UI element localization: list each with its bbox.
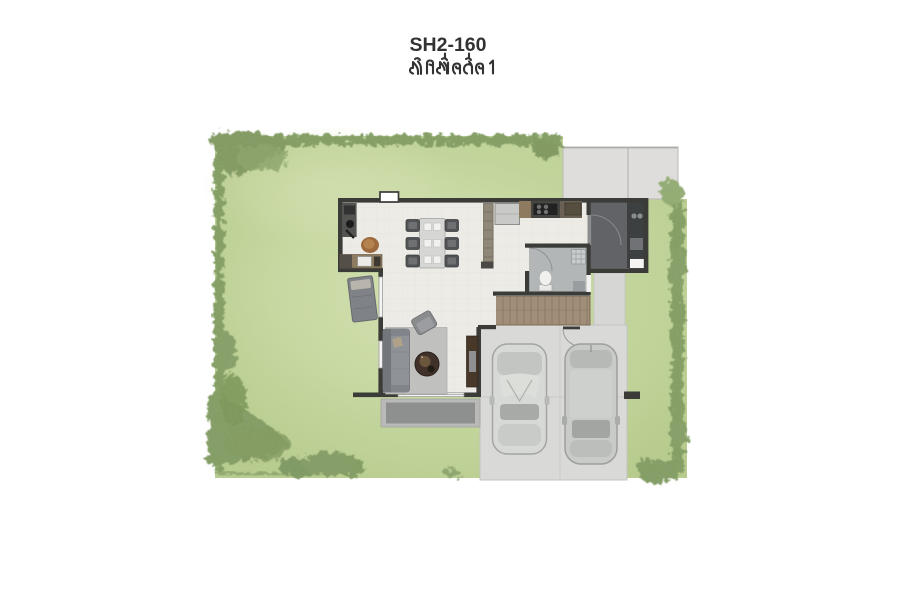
svg-text:SH2-160: SH2-160 (410, 34, 487, 56)
